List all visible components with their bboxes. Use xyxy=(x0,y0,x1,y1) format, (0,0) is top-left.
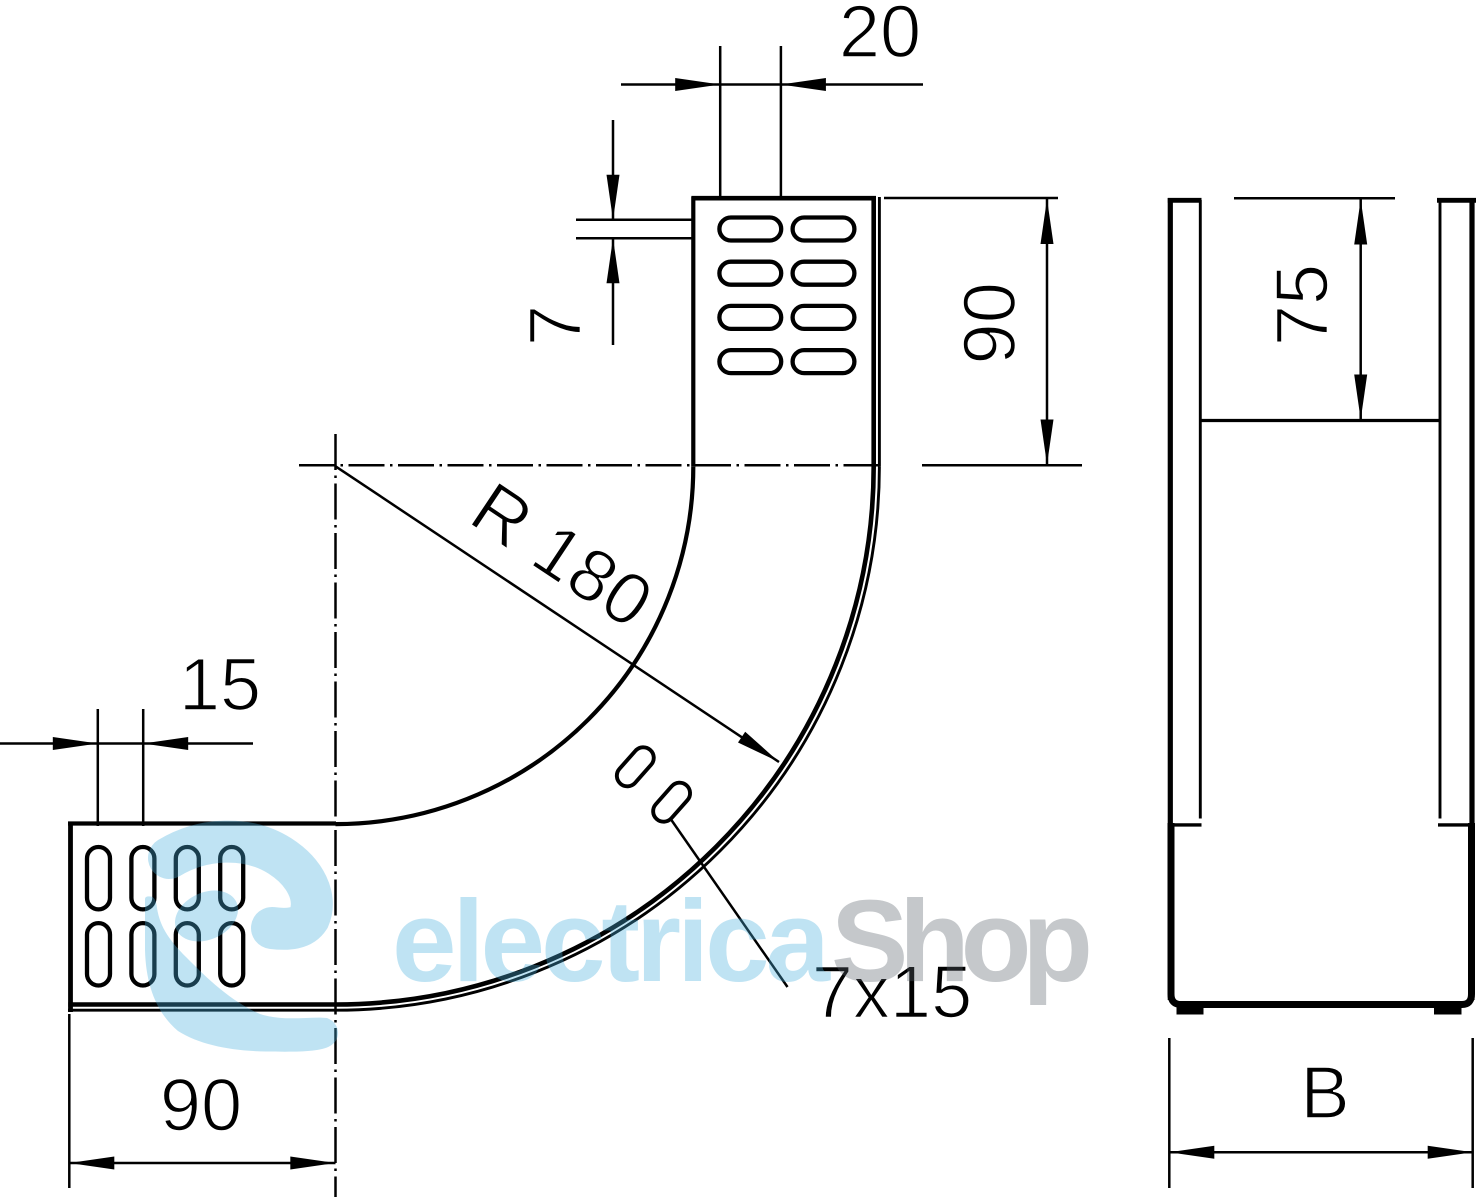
svg-text:15: 15 xyxy=(179,643,261,726)
svg-text:20: 20 xyxy=(839,0,921,73)
svg-text:75: 75 xyxy=(1261,264,1344,346)
svg-text:electrica: electrica xyxy=(392,876,831,1006)
svg-text:90: 90 xyxy=(160,1064,242,1147)
svg-text:7: 7 xyxy=(514,305,597,346)
svg-text:B: B xyxy=(1300,1051,1349,1134)
svg-text:90: 90 xyxy=(948,282,1031,364)
svg-text:Shop: Shop xyxy=(831,876,1093,1006)
